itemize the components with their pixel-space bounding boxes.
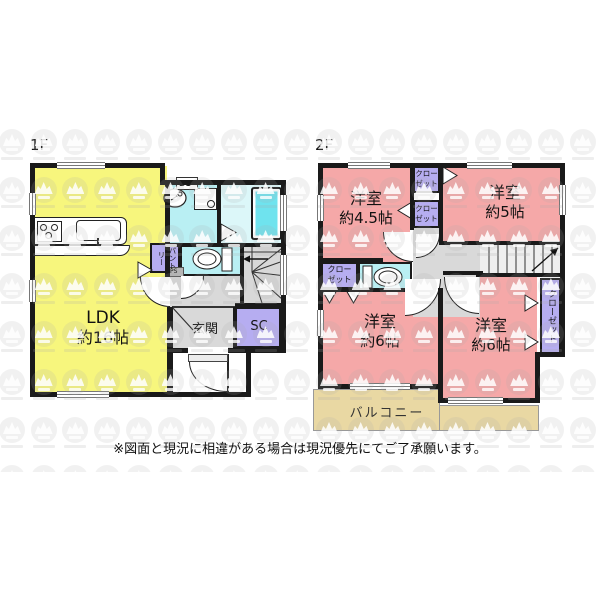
watermark-logo xyxy=(538,129,564,155)
closet-a-label: クロー ゼット xyxy=(413,169,440,188)
room45-size: 約4.5帖 xyxy=(339,209,393,227)
watermark-logo xyxy=(189,417,215,443)
watermark-text-bar xyxy=(572,253,594,256)
watermark-logo xyxy=(221,465,247,472)
wall xyxy=(443,271,483,275)
floorplan-canvas: 1F 2F DS PS パントリー xyxy=(0,0,600,600)
watermark-logo xyxy=(158,465,184,472)
watermark-logo xyxy=(570,417,596,443)
wall xyxy=(233,307,237,348)
watermark-logo xyxy=(126,417,152,443)
watermark-logo xyxy=(0,465,25,472)
toilet-icon-1f xyxy=(189,246,237,273)
watermark-text-bar xyxy=(286,205,308,208)
ldk-name: LDK xyxy=(86,308,120,328)
watermark-text-bar xyxy=(160,397,182,400)
watermark-logo xyxy=(0,369,25,395)
room6b-label: 洋室 約6帖 xyxy=(446,316,536,354)
watermark-logo xyxy=(126,129,152,155)
watermark-logo xyxy=(506,129,532,155)
watermark-text-bar xyxy=(255,157,277,160)
watermark-text-bar xyxy=(191,397,213,400)
watermark-logo xyxy=(475,465,501,472)
watermark-logo xyxy=(189,129,215,155)
watermark-logo xyxy=(379,129,405,155)
watermark-text-bar xyxy=(572,301,594,304)
watermark-logo xyxy=(158,417,184,443)
watermark-text-bar xyxy=(128,157,150,160)
bath-door-triangle xyxy=(220,223,237,242)
window xyxy=(350,383,410,390)
stove-burner-icon xyxy=(51,224,58,231)
watermark-text-bar xyxy=(572,157,594,160)
watermark-logo xyxy=(538,369,564,395)
wall xyxy=(410,163,414,230)
room5-label: 洋室 約5帖 xyxy=(450,183,560,221)
closet-a-l2: ゼット xyxy=(415,179,438,188)
genkan-label: 玄関 xyxy=(180,322,230,338)
window xyxy=(317,310,324,336)
watermark-text-bar xyxy=(1,157,23,160)
watermark-text-bar xyxy=(508,157,530,160)
watermark-logo xyxy=(62,465,88,472)
wall xyxy=(439,163,443,245)
toilet-icon-2f xyxy=(361,265,409,290)
watermark-text-bar xyxy=(572,349,594,352)
watermark-logo xyxy=(0,225,25,251)
ldk-label: LDK 約16帖 xyxy=(48,308,158,349)
room45-name: 洋室 xyxy=(350,189,382,208)
watermark-logo xyxy=(126,465,152,472)
closet-b-label: クロー ゼット xyxy=(413,204,440,223)
kitchen-counter-edge xyxy=(33,245,130,256)
wall xyxy=(535,352,540,403)
watermark-logo xyxy=(570,225,596,251)
watermark-text-bar xyxy=(1,397,23,400)
window xyxy=(559,185,566,215)
watermark-logo xyxy=(253,129,279,155)
wall xyxy=(318,258,383,262)
watermark-logo xyxy=(284,225,310,251)
disclaimer-note: ※図面と現況に相違がある場合は現況優先にてご了承願います。 xyxy=(0,442,600,458)
wall xyxy=(165,243,286,247)
watermark-text-bar xyxy=(286,349,308,352)
closet-a-l1: クロー xyxy=(415,169,438,178)
closet-c-label: クロー ゼット xyxy=(321,265,358,285)
watermark-logo xyxy=(94,129,120,155)
watermark-logo xyxy=(348,129,374,155)
watermark-logo xyxy=(0,273,25,299)
watermark-logo xyxy=(31,417,57,443)
watermark-logo xyxy=(62,129,88,155)
watermark-logo xyxy=(284,369,310,395)
wall xyxy=(235,303,286,307)
room6a-name: 洋室 xyxy=(364,312,396,331)
watermark-text-bar xyxy=(286,157,308,160)
watermark-text-bar xyxy=(1,301,23,304)
watermark-logo xyxy=(0,321,25,347)
watermark-logo xyxy=(221,417,247,443)
watermark-text-bar xyxy=(1,349,23,352)
watermark-logo xyxy=(475,129,501,155)
watermark-logo xyxy=(0,417,25,443)
closet-v-door-triangle xyxy=(524,294,539,312)
watermark-logo xyxy=(284,177,310,203)
watermark-text-bar xyxy=(1,253,23,256)
closet-c-l2: ゼット xyxy=(328,275,352,284)
watermark-logo xyxy=(411,465,437,472)
watermark-text-bar xyxy=(286,301,308,304)
floor-label-2f: 2F xyxy=(315,136,333,154)
watermark-logo xyxy=(570,177,596,203)
watermark-text-bar xyxy=(33,157,55,160)
watermark-logo xyxy=(570,129,596,155)
window xyxy=(448,397,503,404)
watermark-logo xyxy=(538,417,564,443)
window xyxy=(57,162,105,169)
watermark-text-bar xyxy=(572,397,594,400)
window xyxy=(467,162,512,169)
watermark-logo xyxy=(570,321,596,347)
watermark-text-bar xyxy=(255,397,277,400)
watermark-logo xyxy=(253,369,279,395)
watermark-text-bar xyxy=(413,157,435,160)
watermark-text-bar xyxy=(128,397,150,400)
watermark-text-bar xyxy=(160,157,182,160)
closet-v-label: クローゼット xyxy=(542,281,559,351)
window xyxy=(29,193,36,215)
washer-drain-icon xyxy=(207,200,215,208)
watermark-text-bar xyxy=(572,205,594,208)
watermark-text-bar xyxy=(540,157,562,160)
watermark-logo xyxy=(284,417,310,443)
wall xyxy=(438,288,443,400)
pantry-door-triangle xyxy=(137,261,153,279)
watermark-logo xyxy=(570,273,596,299)
watermark-text-bar xyxy=(1,205,23,208)
room6a-label: 洋室 約6帖 xyxy=(330,312,430,350)
watermark-text-bar xyxy=(64,157,86,160)
window xyxy=(280,195,287,231)
window xyxy=(29,280,36,302)
watermark-logo xyxy=(284,273,310,299)
wall xyxy=(246,348,251,397)
wall xyxy=(476,273,565,277)
closet-c-l1: クロー xyxy=(328,265,352,274)
watermark-text-bar xyxy=(223,157,245,160)
wall xyxy=(160,180,286,185)
watermark-text-bar xyxy=(445,157,467,160)
floor-label-1f: 1F xyxy=(30,136,48,154)
watermark-text-bar xyxy=(223,397,245,400)
wall xyxy=(443,241,565,245)
watermark-logo xyxy=(284,321,310,347)
balcony-label: バルコニー xyxy=(332,406,442,422)
stove-burner-icon xyxy=(40,224,47,231)
wall xyxy=(318,288,405,292)
watermark-text-bar xyxy=(540,397,562,400)
watermark-text-bar xyxy=(286,397,308,400)
window xyxy=(317,195,324,221)
watermark-logo xyxy=(0,177,25,203)
wall xyxy=(167,307,173,392)
wall xyxy=(217,182,221,243)
room5-name: 洋室 xyxy=(489,183,521,202)
watermark-text-bar xyxy=(191,157,213,160)
watermark-logo xyxy=(443,129,469,155)
closet-b-l2: ゼット xyxy=(415,214,438,223)
watermark-logo xyxy=(189,465,215,472)
watermark-logo xyxy=(94,465,120,472)
watermark-logo xyxy=(253,465,279,472)
room6a-size: 約6帖 xyxy=(360,332,400,350)
watermark-logo xyxy=(31,465,57,472)
watermark-logo xyxy=(570,465,596,472)
window xyxy=(280,255,287,295)
watermark-logo xyxy=(570,369,596,395)
watermark-text-bar xyxy=(350,157,372,160)
room6b-size: 約6帖 xyxy=(471,336,511,354)
entrance-door-arc xyxy=(189,362,227,392)
ldk-size: 約16帖 xyxy=(77,328,129,347)
wall xyxy=(165,180,170,277)
watermark-text-bar xyxy=(96,157,118,160)
watermark-logo xyxy=(158,129,184,155)
watermark-logo xyxy=(348,465,374,472)
entrance-opening xyxy=(188,347,228,354)
watermark-logo xyxy=(284,129,310,155)
watermark-logo xyxy=(443,465,469,472)
watermark-text-bar xyxy=(33,397,55,400)
watermark-text-bar xyxy=(381,157,403,160)
bathtub xyxy=(251,187,282,240)
room5-size: 約5帖 xyxy=(485,203,525,221)
watermark-logo xyxy=(316,465,342,472)
balcony xyxy=(439,405,539,431)
watermark-logo xyxy=(506,465,532,472)
entrance-step xyxy=(188,354,228,362)
watermark-logo xyxy=(94,417,120,443)
watermark-logo xyxy=(411,129,437,155)
watermark-logo xyxy=(538,465,564,472)
watermark-logo xyxy=(253,417,279,443)
shoe-closet-label: SC xyxy=(243,319,275,335)
watermark-logo xyxy=(0,129,25,155)
window xyxy=(348,162,390,169)
watermark-text-bar xyxy=(318,157,340,160)
watermark-logo xyxy=(379,465,405,472)
watermark-logo xyxy=(62,417,88,443)
wall xyxy=(168,392,251,397)
stove-burner-icon xyxy=(45,232,52,239)
room45-label: 洋室 約4.5帖 xyxy=(320,189,412,227)
watermark-logo xyxy=(284,465,310,472)
wall xyxy=(240,243,244,307)
stairs-2f xyxy=(480,245,560,273)
closet-b-l1: クロー xyxy=(415,204,438,213)
window xyxy=(57,391,109,398)
watermark-logo xyxy=(221,129,247,155)
watermark-text-bar xyxy=(286,253,308,256)
watermark-text-bar xyxy=(477,157,499,160)
room6b-name: 洋室 xyxy=(475,316,507,335)
